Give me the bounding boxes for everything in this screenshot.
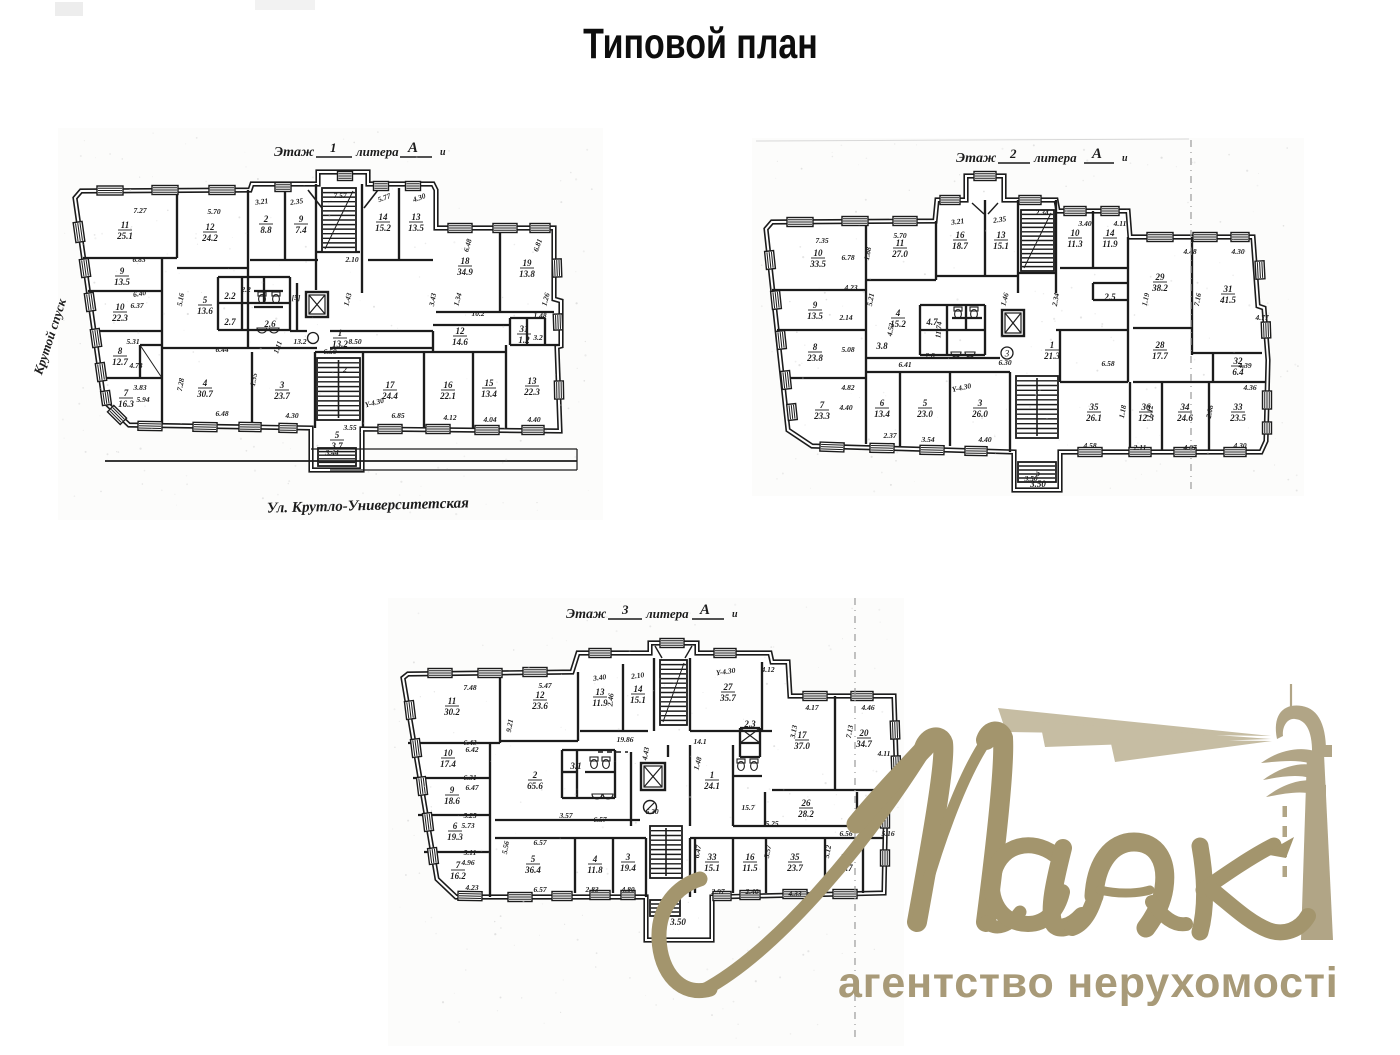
svg-text:34.7: 34.7	[855, 739, 872, 749]
svg-text:24.2: 24.2	[201, 233, 218, 243]
svg-text:5.47: 5.47	[538, 681, 551, 690]
svg-text:17.7: 17.7	[1152, 351, 1168, 361]
svg-text:агентство нерухомості: агентство нерухомості	[838, 959, 1339, 1007]
svg-text:3: 3	[279, 380, 285, 390]
svg-text:6.57: 6.57	[593, 815, 606, 824]
svg-text:10: 10	[444, 748, 454, 758]
svg-text:15: 15	[485, 378, 495, 388]
svg-text:13: 13	[997, 230, 1007, 240]
svg-text:13.2: 13.2	[293, 337, 306, 346]
svg-text:6: 6	[880, 398, 885, 408]
svg-text:5.73: 5.73	[461, 821, 474, 830]
svg-text:12: 12	[456, 326, 466, 336]
svg-text:3: 3	[1004, 349, 1010, 359]
svg-text:36.4: 36.4	[524, 865, 541, 875]
svg-text:12: 12	[206, 222, 216, 232]
svg-text:10: 10	[814, 248, 824, 258]
svg-text:5.31: 5.31	[126, 337, 139, 346]
svg-text:5.08: 5.08	[841, 345, 854, 354]
svg-text:21.3: 21.3	[1043, 351, 1060, 361]
svg-text:8.50: 8.50	[348, 337, 361, 346]
svg-text:2.34: 2.34	[1034, 208, 1048, 217]
svg-text:4.39: 4.39	[1237, 361, 1251, 370]
svg-text:2.7: 2.7	[223, 317, 236, 327]
svg-text:4.04: 4.04	[482, 415, 496, 424]
svg-text:4.23: 4.23	[464, 883, 478, 892]
svg-text:13.4: 13.4	[481, 389, 497, 399]
svg-text:22.3: 22.3	[523, 387, 540, 397]
svg-text:11: 11	[121, 220, 130, 230]
svg-text:5.94: 5.94	[136, 395, 149, 404]
svg-text:7.27: 7.27	[133, 206, 146, 215]
svg-text:1: 1	[1050, 340, 1055, 350]
svg-text:26: 26	[801, 798, 812, 808]
svg-text:6.31: 6.31	[463, 773, 476, 782]
svg-text:35: 35	[1089, 402, 1100, 412]
svg-text:2.6: 2.6	[263, 319, 276, 329]
svg-text:6.57: 6.57	[533, 885, 546, 894]
svg-text:31: 31	[1223, 284, 1233, 294]
svg-text:10: 10	[116, 302, 126, 312]
svg-text:13.6: 13.6	[197, 306, 213, 316]
svg-text:13: 13	[528, 376, 538, 386]
svg-text:6.57: 6.57	[533, 838, 546, 847]
svg-text:4.11: 4.11	[1113, 219, 1127, 228]
svg-text:18.7: 18.7	[952, 241, 968, 251]
svg-text:4.30: 4.30	[1230, 247, 1244, 256]
svg-text:11.8: 11.8	[587, 865, 603, 875]
svg-text:7.48: 7.48	[463, 683, 476, 692]
svg-text:17.4: 17.4	[440, 759, 456, 769]
svg-text:34.9: 34.9	[456, 267, 473, 277]
svg-text:Этаж: Этаж	[566, 607, 607, 622]
svg-text:А: А	[699, 602, 710, 618]
svg-text:28.2: 28.2	[797, 809, 814, 819]
svg-text:4.12: 4.12	[442, 413, 456, 422]
svg-text:3: 3	[977, 398, 983, 408]
svg-text:27.0: 27.0	[891, 249, 908, 259]
svg-text:6.85: 6.85	[391, 411, 404, 420]
svg-text:3.83: 3.83	[132, 383, 146, 392]
svg-text:13.4: 13.4	[874, 409, 890, 419]
svg-text:4: 4	[592, 854, 598, 864]
svg-text:11.74: 11.74	[933, 321, 943, 338]
svg-text:3.1: 3.1	[569, 761, 581, 771]
svg-text:6.44: 6.44	[215, 345, 228, 354]
svg-text:13.5: 13.5	[114, 277, 130, 287]
svg-text:4.80: 4.80	[620, 885, 634, 894]
svg-text:А: А	[407, 140, 418, 156]
svg-text:5: 5	[923, 398, 928, 408]
svg-text:2.2: 2.2	[223, 291, 236, 301]
svg-text:34: 34	[1180, 402, 1191, 412]
svg-text:25.1: 25.1	[116, 231, 133, 241]
svg-text:5: 5	[203, 295, 208, 305]
svg-text:15.1: 15.1	[630, 695, 646, 705]
svg-text:5: 5	[335, 430, 340, 440]
svg-text:23.5: 23.5	[1229, 413, 1246, 423]
svg-text:10.2: 10.2	[471, 309, 484, 318]
svg-text:1: 1	[330, 140, 337, 155]
svg-text:33: 33	[707, 852, 718, 862]
svg-text:26.0: 26.0	[971, 409, 988, 419]
svg-text:14: 14	[1106, 228, 1116, 238]
svg-text:4.46: 4.46	[860, 703, 874, 712]
svg-text:11.5: 11.5	[742, 863, 758, 873]
svg-text:16: 16	[444, 380, 454, 390]
svg-text:2.11: 2.11	[1133, 443, 1147, 452]
svg-text:14: 14	[379, 212, 389, 222]
svg-text:13.8: 13.8	[519, 269, 535, 279]
svg-text:2: 2	[532, 770, 538, 780]
svg-text:23.7: 23.7	[273, 391, 290, 401]
svg-text:2.3: 2.3	[743, 719, 756, 729]
svg-text:14.6: 14.6	[452, 337, 468, 347]
svg-text:9: 9	[120, 266, 125, 276]
svg-text:4.48: 4.48	[1182, 247, 1196, 256]
svg-text:15.1: 15.1	[704, 863, 720, 873]
svg-text:24.1: 24.1	[703, 781, 720, 791]
svg-text:33: 33	[1233, 402, 1244, 412]
svg-text:4.40: 4.40	[977, 435, 991, 444]
svg-text:15.7: 15.7	[741, 803, 754, 812]
svg-text:20: 20	[859, 728, 870, 738]
svg-text:18.6: 18.6	[444, 796, 460, 806]
svg-text:7.57: 7.57	[333, 191, 346, 200]
svg-text:17: 17	[386, 380, 396, 390]
svg-text:3.2: 3.2	[532, 333, 543, 342]
svg-text:4.07: 4.07	[1182, 443, 1196, 452]
svg-text:9: 9	[450, 785, 455, 795]
svg-text:4.96: 4.96	[460, 858, 474, 867]
svg-text:13.5: 13.5	[807, 311, 823, 321]
svg-text:6.58: 6.58	[1101, 359, 1114, 368]
svg-text:7: 7	[124, 388, 129, 398]
svg-text:3.8: 3.8	[875, 341, 888, 351]
svg-text:6.41: 6.41	[898, 360, 911, 369]
svg-text:33.5: 33.5	[809, 259, 826, 269]
svg-text:4: 4	[202, 378, 208, 388]
svg-text:Этаж: Этаж	[274, 145, 315, 160]
svg-text:4.12: 4.12	[760, 665, 774, 674]
svg-text:19.3: 19.3	[447, 832, 463, 842]
svg-text:2.37: 2.37	[882, 431, 896, 440]
svg-text:4.40: 4.40	[526, 415, 540, 424]
svg-text:2.97: 2.97	[710, 887, 724, 896]
svg-text:4.30: 4.30	[284, 411, 298, 420]
svg-text:1.2: 1.2	[518, 335, 530, 345]
svg-text:13.5: 13.5	[408, 223, 424, 233]
svg-text:16: 16	[956, 230, 966, 240]
svg-text:6.78: 6.78	[841, 253, 854, 262]
svg-text:8.8: 8.8	[260, 225, 272, 235]
svg-text:и: и	[440, 147, 446, 158]
svg-text:12: 12	[536, 690, 546, 700]
svg-text:11.9: 11.9	[1102, 239, 1118, 249]
svg-text:12.7: 12.7	[112, 357, 128, 367]
svg-text:13: 13	[412, 212, 422, 222]
svg-text:6.37: 6.37	[130, 301, 143, 310]
svg-text:17: 17	[798, 730, 808, 740]
svg-text:3.40: 3.40	[1077, 219, 1091, 228]
svg-text:16.2: 16.2	[450, 871, 466, 881]
svg-text:1: 1	[710, 770, 715, 780]
svg-text:литера: литера	[645, 606, 689, 621]
svg-text:2.14: 2.14	[838, 313, 852, 322]
svg-text:30.2: 30.2	[443, 707, 460, 717]
svg-text:8: 8	[118, 346, 123, 356]
svg-text:2: 2	[1009, 146, 1017, 161]
svg-text:3.55: 3.55	[342, 423, 356, 432]
svg-text:4.30: 4.30	[1232, 441, 1246, 450]
svg-text:15.2: 15.2	[375, 223, 391, 233]
svg-text:41.5: 41.5	[1219, 295, 1236, 305]
svg-text:литера: литера	[1033, 150, 1077, 165]
svg-text:19.4: 19.4	[620, 863, 636, 873]
svg-text:4.23: 4.23	[843, 283, 857, 292]
svg-text:10: 10	[1071, 228, 1081, 238]
svg-text:3.57: 3.57	[558, 811, 572, 820]
svg-text:9: 9	[299, 214, 304, 224]
svg-text:7: 7	[820, 400, 825, 410]
svg-text:6.30: 6.30	[998, 358, 1011, 367]
svg-text:4.36: 4.36	[1242, 383, 1256, 392]
svg-text:19.86: 19.86	[617, 735, 634, 744]
svg-text:28: 28	[1155, 340, 1166, 350]
svg-text:31: 31	[519, 324, 529, 334]
svg-text:и: и	[732, 609, 738, 620]
svg-text:3: 3	[625, 852, 631, 862]
svg-text:2.8: 2.8	[924, 351, 935, 360]
svg-text:11: 11	[448, 696, 457, 706]
svg-text:[5]: [5]	[292, 293, 301, 302]
svg-text:2.5: 2.5	[1103, 292, 1116, 302]
svg-text:5: 5	[531, 854, 536, 864]
svg-text:35.7: 35.7	[719, 693, 736, 703]
svg-text:1.48: 1.48	[533, 311, 546, 320]
svg-text:4.11: 4.11	[877, 749, 891, 758]
svg-text:7.4: 7.4	[295, 225, 307, 235]
svg-text:6.50: 6.50	[323, 347, 336, 356]
svg-text:13: 13	[596, 687, 606, 697]
svg-text:18: 18	[461, 256, 471, 266]
svg-text:6.42: 6.42	[465, 745, 478, 754]
svg-text:22.3: 22.3	[111, 313, 128, 323]
svg-text:4.77: 4.77	[1254, 313, 1268, 322]
svg-text:14.1: 14.1	[693, 737, 706, 746]
svg-text:29: 29	[1155, 272, 1166, 282]
svg-text:6: 6	[453, 821, 458, 831]
svg-text:7: 7	[456, 860, 461, 870]
svg-text:и: и	[1122, 153, 1128, 164]
svg-text:11.3: 11.3	[1067, 239, 1083, 249]
svg-text:6.48: 6.48	[215, 409, 228, 418]
svg-text:23.0: 23.0	[916, 409, 933, 419]
svg-text:9: 9	[813, 300, 818, 310]
svg-text:3: 3	[621, 602, 629, 617]
svg-text:А: А	[1091, 146, 1102, 162]
svg-text:5.25: 5.25	[765, 819, 778, 828]
svg-text:27: 27	[723, 682, 734, 692]
svg-text:23.6: 23.6	[531, 701, 548, 711]
svg-text:2.40: 2.40	[744, 887, 758, 896]
svg-text:6.30: 6.30	[645, 807, 658, 816]
svg-text:4.17: 4.17	[804, 703, 818, 712]
svg-text:15.1: 15.1	[993, 241, 1009, 251]
svg-text:3.50: 3.50	[1023, 474, 1037, 483]
svg-text:4.33: 4.33	[787, 889, 801, 898]
svg-text:4.58: 4.58	[1082, 441, 1096, 450]
svg-text:6.47: 6.47	[465, 783, 478, 792]
svg-text:1: 1	[338, 328, 343, 338]
svg-text:35: 35	[790, 852, 801, 862]
svg-text:5.70: 5.70	[893, 231, 906, 240]
svg-text:3.50: 3.50	[669, 917, 686, 927]
svg-text:5.25: 5.25	[463, 811, 476, 820]
svg-text:6.83: 6.83	[132, 255, 145, 264]
svg-text:4: 4	[895, 308, 901, 318]
svg-text:2.83: 2.83	[584, 885, 598, 894]
svg-text:5.11: 5.11	[464, 848, 477, 857]
svg-text:2: 2	[342, 365, 347, 374]
svg-text:литера: литера	[355, 144, 399, 159]
svg-text:14: 14	[634, 684, 644, 694]
svg-text:4.82: 4.82	[840, 383, 854, 392]
svg-text:19: 19	[523, 258, 533, 268]
svg-text:22.1: 22.1	[439, 391, 456, 401]
svg-text:Этаж: Этаж	[956, 151, 997, 166]
svg-text:23.3: 23.3	[813, 411, 830, 421]
svg-text:5.16: 5.16	[881, 829, 894, 838]
svg-text:8: 8	[813, 342, 818, 352]
svg-text:2.2: 2.2	[240, 285, 251, 294]
svg-text:37.0: 37.0	[793, 741, 810, 751]
svg-text:3.54: 3.54	[920, 435, 934, 444]
svg-text:26.1: 26.1	[1085, 413, 1102, 423]
svg-text:2.10: 2.10	[344, 255, 358, 264]
svg-text:4.73: 4.73	[128, 361, 142, 370]
svg-text:5.70: 5.70	[207, 207, 220, 216]
svg-text:2.46: 2.46	[605, 693, 615, 708]
svg-text:23.7: 23.7	[786, 863, 803, 873]
svg-text:16.3: 16.3	[118, 399, 134, 409]
svg-text:24.4: 24.4	[381, 391, 398, 401]
svg-text:2: 2	[263, 214, 269, 224]
svg-text:38.2: 38.2	[1151, 283, 1168, 293]
svg-text:4.40: 4.40	[838, 403, 852, 412]
svg-text:7.35: 7.35	[815, 236, 828, 245]
svg-text:30.7: 30.7	[196, 389, 213, 399]
svg-text:23.8: 23.8	[806, 353, 823, 363]
